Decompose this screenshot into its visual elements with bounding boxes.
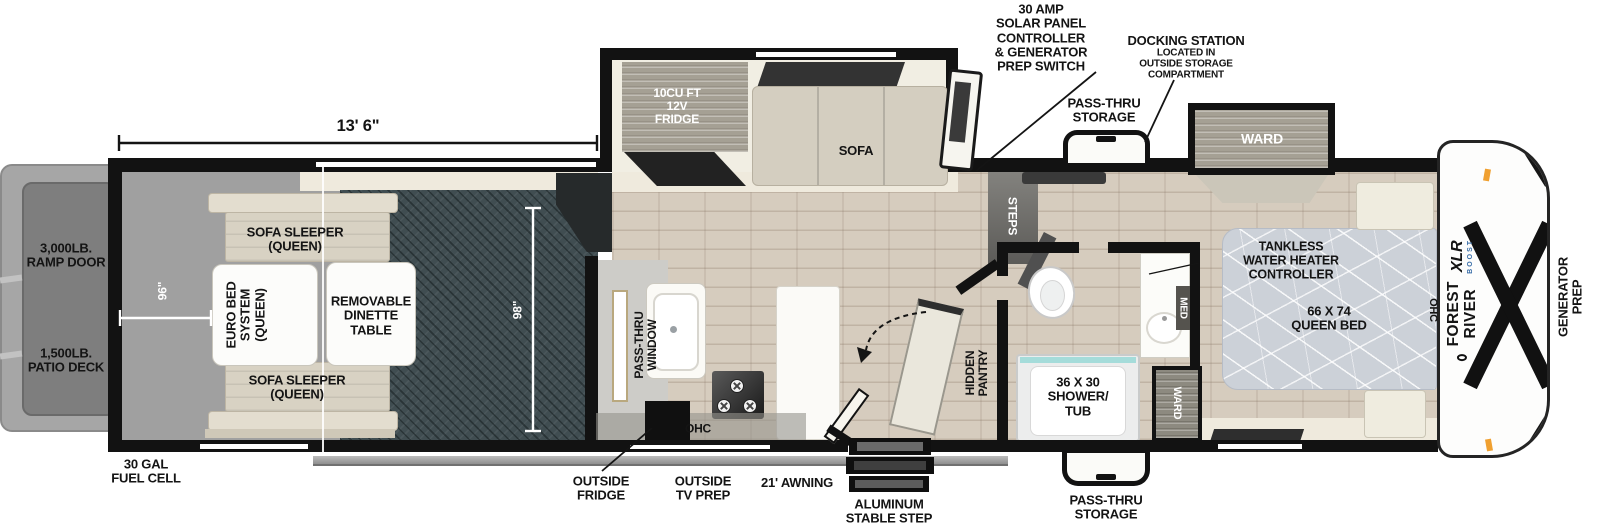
- label-passthru-bottom: PASS-THRU STORAGE: [1069, 494, 1142, 523]
- bath-wall-top-right: [1108, 242, 1200, 253]
- marker-light: [1485, 439, 1493, 452]
- leader-docking: [1145, 80, 1174, 142]
- brand-model: XLR: [1449, 239, 1467, 274]
- kitchen-sink: [653, 293, 699, 371]
- ramp-door-panel: [22, 182, 116, 416]
- label-sofa-sleeper-top: SOFA SLEEPER (QUEEN): [247, 226, 344, 255]
- label-ward-slide: WARD: [1241, 131, 1283, 146]
- callout-docking-title: DOCKING STATION: [1127, 34, 1244, 48]
- label-sofa-sleeper-bottom: SOFA SLEEPER (QUEEN): [249, 374, 346, 403]
- pass-thru-window: [612, 290, 628, 402]
- label-ohc-kitchen: OHC: [685, 422, 711, 435]
- passthru-top-handle: [1096, 136, 1116, 142]
- bath-wall-left-b: [997, 300, 1008, 440]
- brand-emblem-icon: [1457, 354, 1467, 361]
- nightstand-bottom: [1364, 390, 1426, 438]
- brand-sub: BOOST: [1467, 239, 1475, 274]
- label-med: MED: [1178, 297, 1189, 319]
- label-pass-thru-window: PASS-THRU WINDOW: [633, 311, 659, 378]
- toilet-bowl: [1040, 280, 1065, 311]
- label-fuel-cell: 30 GAL FUEL CELL: [111, 458, 180, 487]
- label-euro-bed: EURO BED SYSTEM (QUEEN): [225, 281, 268, 348]
- bath-wall-left-a: [997, 242, 1008, 276]
- label-ohc-bedroom: OHC: [1427, 298, 1439, 322]
- wall-left: [108, 158, 122, 452]
- label-hidden-pantry: HIDDEN PANTRY: [964, 350, 990, 397]
- label-shower-tub: 36 X 30 SHOWER/ TUB: [1048, 376, 1109, 419]
- label-ward-bath: WARD: [1171, 387, 1183, 420]
- bath-wall-top-left: [997, 242, 1079, 253]
- label-stable-step: ALUMINUM STABLE STEP: [846, 498, 932, 527]
- bath-wall-right: [1190, 242, 1200, 368]
- dim-ramp-width: 96": [156, 282, 169, 300]
- dim-garage-depth: 98": [511, 301, 524, 319]
- wall-bottom-right: [918, 440, 1438, 452]
- sofa-sleeper-bottom-back: [208, 411, 398, 431]
- window-strip-bedroom-bottom: [1218, 444, 1302, 449]
- callout-docking-sub: LOCATED IN OUTSIDE STORAGE COMPARTMENT: [1139, 48, 1233, 81]
- stable-step-tread: [854, 461, 926, 470]
- stable-step-tread: [855, 480, 923, 488]
- sofa-sleeper-top-back: [208, 193, 398, 213]
- label-generator-prep: GENERATOR PREP: [1557, 257, 1586, 337]
- label-patio-deck: 1,500LB. PATIO DECK: [28, 347, 104, 376]
- label-steps: STEPS: [1005, 197, 1018, 235]
- passthru-bottom-handle: [1096, 474, 1116, 480]
- stove: [712, 371, 764, 419]
- wall-vent-slot: [1022, 172, 1106, 184]
- marker-light: [1483, 169, 1491, 182]
- window-strip-garage-top: [316, 162, 596, 167]
- window-strip-garage-bottom: [200, 444, 308, 449]
- shower-glass: [1020, 357, 1136, 363]
- label-dinette: REMOVABLE DINETTE TABLE: [331, 295, 411, 338]
- burner-icon: [730, 379, 744, 393]
- label-outside-tv: OUTSIDE TV PREP: [675, 475, 731, 504]
- label-passthru-top: PASS-THRU STORAGE: [1067, 97, 1140, 126]
- stable-step-tread: [857, 442, 923, 451]
- garage-top-band: [300, 171, 598, 191]
- label-awning: 21' AWNING: [761, 476, 833, 490]
- sofa-platform: [205, 429, 395, 438]
- label-fridge: 10CU FT 12V FRIDGE: [653, 87, 700, 127]
- slide-sofa-backrest: [757, 62, 905, 88]
- nightstand-top: [1356, 182, 1434, 230]
- burner-icon: [717, 399, 731, 413]
- label-ramp-door: 3,000LB. RAMP DOOR: [27, 242, 106, 271]
- brand-maker: FOREST RIVER: [1445, 280, 1479, 348]
- label-outside-fridge: OUTSIDE FRIDGE: [573, 475, 629, 504]
- slide-sofa: [752, 86, 948, 186]
- label-tankless: TANKLESS WATER HEATER CONTROLLER: [1243, 240, 1339, 281]
- label-sofa: SOFA: [839, 144, 874, 158]
- dim-garage-length: 13' 6": [337, 117, 380, 135]
- rv-floorplan: FOREST RIVER XLR BOOST: [0, 0, 1600, 529]
- callout-solar: 30 AMP SOLAR PANEL CONTROLLER & GENERATO…: [995, 2, 1088, 73]
- sink-faucet: [670, 326, 677, 333]
- slideout-window-strip: [756, 52, 896, 57]
- burner-icon: [743, 399, 757, 413]
- window-strip-kitchen-bottom: [630, 445, 770, 449]
- passthru-storage-door-bottom: [1062, 448, 1150, 486]
- vanity-faucet: [1162, 316, 1167, 321]
- label-queen-bed: 66 X 74 QUEEN BED: [1291, 305, 1367, 334]
